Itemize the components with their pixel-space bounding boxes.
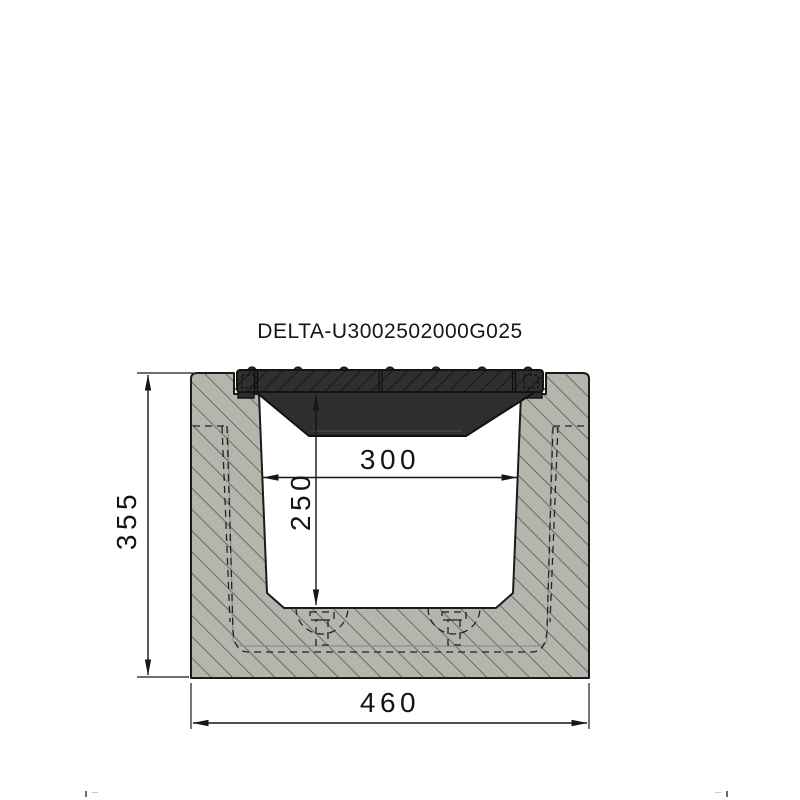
drawing-canvas: DELTA-U3002502000G025 — [0, 0, 800, 800]
dimension-value-300: 300 — [360, 444, 420, 475]
dimension-value-460: 460 — [360, 687, 420, 718]
dimension-total-width: 460 — [191, 683, 589, 729]
drawing-page: DELTA-U3002502000G025 — [0, 0, 800, 800]
dimension-total-height: 355 — [111, 373, 193, 677]
drawing-title: DELTA-U3002502000G025 — [257, 320, 522, 343]
page-corner-marks — [86, 791, 727, 797]
dimension-value-250: 250 — [285, 471, 316, 531]
dimension-value-355: 355 — [111, 490, 142, 550]
grating — [237, 367, 543, 436]
grating-top-bar — [237, 370, 543, 392]
grating-lower-body — [256, 392, 535, 436]
